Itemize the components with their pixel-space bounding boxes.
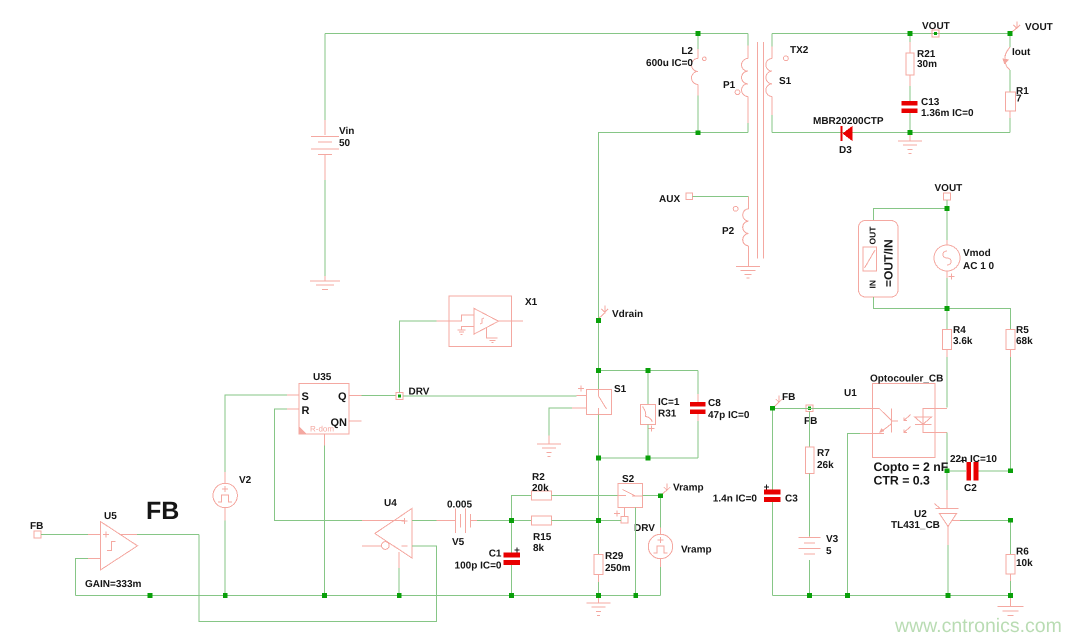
svg-text:30m: 30m xyxy=(917,59,937,70)
svg-text:V2: V2 xyxy=(239,475,252,486)
svg-text:FB: FB xyxy=(30,521,43,532)
svg-text:50: 50 xyxy=(339,138,351,149)
svg-text:C1: C1 xyxy=(489,549,502,560)
svg-text:V3: V3 xyxy=(826,534,839,545)
svg-text:Vmod: Vmod xyxy=(963,248,991,259)
svg-text:Vramp: Vramp xyxy=(673,483,704,494)
svg-text:U1: U1 xyxy=(844,388,857,399)
svg-text:TX2: TX2 xyxy=(790,45,809,56)
svg-text:MBR20200CTP: MBR20200CTP xyxy=(813,116,884,127)
svg-text:CTR = 0.3: CTR = 0.3 xyxy=(874,474,931,488)
svg-text:S1: S1 xyxy=(614,384,627,395)
svg-text:1.36m IC=0: 1.36m IC=0 xyxy=(921,108,974,119)
svg-text:3.6k: 3.6k xyxy=(953,336,973,347)
svg-text:P1: P1 xyxy=(723,80,736,91)
svg-text:www.cntronics.com: www.cntronics.com xyxy=(894,615,1062,637)
svg-text:R4: R4 xyxy=(953,325,966,336)
svg-text:R6: R6 xyxy=(1016,547,1029,558)
svg-text:20k: 20k xyxy=(532,483,549,494)
svg-text:R15: R15 xyxy=(533,532,552,543)
svg-text:FB: FB xyxy=(146,497,179,525)
svg-text:5: 5 xyxy=(826,546,832,557)
svg-text:Q: Q xyxy=(338,391,347,403)
svg-text:1.4n IC=0: 1.4n IC=0 xyxy=(713,494,758,505)
svg-text:Copto = 2 nF: Copto = 2 nF xyxy=(874,460,949,474)
svg-text:C13: C13 xyxy=(921,97,940,108)
svg-text:AC 1 0: AC 1 0 xyxy=(963,261,995,272)
svg-text:10k: 10k xyxy=(1016,558,1033,569)
svg-text:S2: S2 xyxy=(622,474,635,485)
svg-text:VOUT: VOUT xyxy=(935,183,963,194)
svg-text:U5: U5 xyxy=(104,511,117,522)
svg-text:FB: FB xyxy=(804,416,817,427)
svg-text:47p IC=0: 47p IC=0 xyxy=(708,410,750,421)
svg-text:V5: V5 xyxy=(452,537,465,548)
svg-text:R: R xyxy=(302,405,310,417)
svg-text:D3: D3 xyxy=(839,145,852,156)
svg-text:AUX: AUX xyxy=(659,194,680,205)
svg-text:600u IC=0: 600u IC=0 xyxy=(646,58,693,69)
svg-text:GAIN=333m: GAIN=333m xyxy=(85,579,142,590)
svg-text:Vramp: Vramp xyxy=(681,545,712,556)
svg-text:OUT: OUT xyxy=(868,226,878,245)
svg-text:8k: 8k xyxy=(533,543,545,554)
svg-text:R2: R2 xyxy=(532,472,545,483)
svg-text:FB: FB xyxy=(782,392,795,403)
svg-text:7: 7 xyxy=(1016,94,1022,105)
svg-text:X1: X1 xyxy=(525,297,538,308)
svg-text:VOUT: VOUT xyxy=(1025,22,1053,33)
svg-text:Iout: Iout xyxy=(1012,47,1031,58)
svg-text:=OUT/IN: =OUT/IN xyxy=(882,239,896,287)
svg-text:C8: C8 xyxy=(708,398,721,409)
svg-text:C2: C2 xyxy=(964,483,977,494)
svg-text:250m: 250m xyxy=(605,563,631,574)
svg-text:DRV: DRV xyxy=(634,523,655,534)
svg-text:26k: 26k xyxy=(817,460,834,471)
svg-text:R31: R31 xyxy=(658,409,677,420)
svg-text:68k: 68k xyxy=(1016,336,1033,347)
svg-text:TL431_CB: TL431_CB xyxy=(891,520,940,531)
svg-text:U2: U2 xyxy=(914,509,927,520)
svg-text:R5: R5 xyxy=(1016,325,1029,336)
svg-text:IN: IN xyxy=(868,280,878,289)
svg-text:22n IC=10: 22n IC=10 xyxy=(950,454,997,465)
svg-text:P2: P2 xyxy=(722,226,735,237)
svg-text:Vdrain: Vdrain xyxy=(612,309,643,320)
svg-text:S: S xyxy=(302,391,309,403)
svg-text:Vin: Vin xyxy=(339,126,354,137)
svg-text:C3: C3 xyxy=(785,494,798,505)
svg-text:U35: U35 xyxy=(313,372,332,383)
svg-text:R-dom: R-dom xyxy=(310,425,334,434)
svg-text:L2: L2 xyxy=(681,46,693,57)
svg-text:U4: U4 xyxy=(384,498,397,509)
svg-text:100p IC=0: 100p IC=0 xyxy=(455,561,502,572)
svg-text:S1: S1 xyxy=(779,76,792,87)
svg-text:0.005: 0.005 xyxy=(447,500,472,511)
svg-text:Optocouler_CB: Optocouler_CB xyxy=(870,374,943,385)
svg-text:IC=1: IC=1 xyxy=(658,397,680,408)
svg-text:VOUT: VOUT xyxy=(922,21,950,32)
svg-text:R29: R29 xyxy=(605,551,624,562)
svg-text:R7: R7 xyxy=(817,448,830,459)
